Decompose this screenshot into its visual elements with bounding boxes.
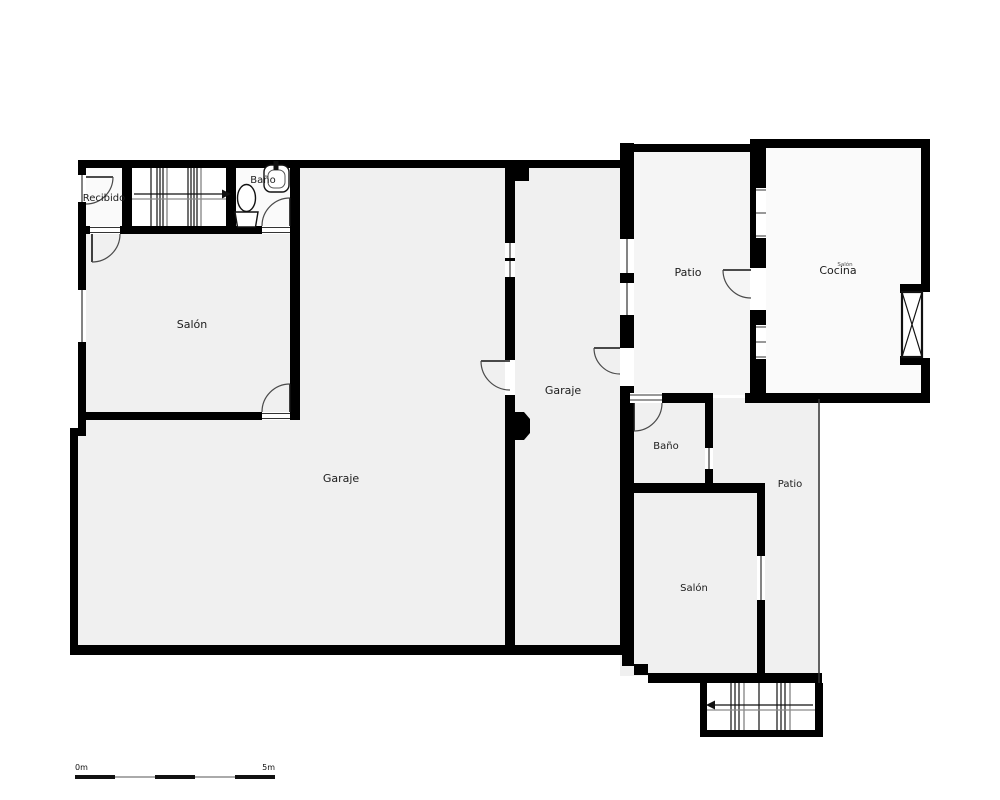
room-label-garaje-second: Garaje	[545, 384, 582, 397]
scale-bar: 0m 5m	[75, 763, 275, 779]
wall-cocina-top	[750, 139, 930, 148]
room-label-salon-bottom: Salón	[680, 582, 708, 594]
toilet-icon	[238, 185, 256, 212]
x-window	[900, 284, 930, 365]
wall-salon-right	[290, 160, 300, 420]
wall-step-1	[622, 655, 634, 666]
wall-step-2	[634, 664, 648, 675]
wall-stairs2-right	[815, 683, 823, 737]
window-garage-divider	[505, 240, 515, 280]
wall-left-lower	[70, 428, 78, 655]
opening-cocina-door	[750, 268, 766, 310]
wall-top-nw	[78, 160, 634, 168]
room-label-bano-right: Baño	[653, 441, 678, 452]
room-label-recibido: Recibido	[83, 193, 126, 204]
window-east-divider-2	[620, 280, 634, 318]
wall-cocina-right	[921, 139, 930, 403]
floor-plan-page: Recibido Baño Salón Garaje Garaje Patio …	[0, 0, 1000, 800]
window-salon2	[757, 553, 765, 603]
floor-nw-block	[78, 160, 634, 655]
window-cocina-lower	[756, 325, 766, 359]
threshold-salon-bottom	[262, 412, 290, 420]
threshold-bano-top	[262, 226, 290, 234]
wall-stairs-bano	[226, 160, 236, 234]
room-label-garaje-main: Garaje	[323, 472, 360, 485]
opening-garage2-door	[620, 348, 634, 386]
room-label-bano-top: Baño	[250, 175, 275, 186]
scale-seg-2	[115, 776, 155, 778]
toilet-tank	[235, 212, 258, 227]
room-label-salon-top: Salón	[177, 318, 208, 331]
wall-bottom-salon2	[648, 673, 822, 683]
scale-seg-4	[195, 776, 235, 778]
threshold-bano2-top	[630, 393, 662, 403]
wall-stairs2-left	[700, 683, 707, 737]
wall-bano2-bottom	[620, 483, 765, 493]
wall-bano2-right	[705, 393, 713, 490]
scale-seg-5	[235, 775, 275, 779]
floor-stairs-top	[132, 168, 228, 228]
room-label-cocina-tiny-overlay: Salón	[837, 261, 853, 268]
wall-patio-top	[622, 144, 754, 152]
scale-end-label: 5m	[262, 763, 275, 772]
sink-tap	[274, 161, 279, 170]
room-label-patio-top: Patio	[675, 266, 702, 279]
scale-start-label: 0m	[75, 763, 88, 772]
wall-divider-pillar	[505, 412, 530, 440]
window-east-divider-1	[620, 236, 634, 276]
window-bano2	[705, 445, 713, 472]
window-salon-left	[78, 287, 86, 345]
wall-stairs2-bottom	[700, 730, 823, 737]
floor-plan-svg: Recibido Baño Salón Garaje Garaje Patio …	[0, 0, 1000, 800]
threshold-recibido-salon	[90, 226, 120, 234]
wall-bottom-garage	[70, 645, 632, 655]
scale-seg-1	[75, 775, 115, 779]
floor-se-block	[620, 398, 820, 676]
window-cocina-upper	[756, 188, 766, 238]
scale-seg-3	[155, 775, 195, 779]
wall-cocina-bottom	[745, 393, 930, 403]
room-label-patio-right: Patio	[778, 479, 803, 490]
wall-divider-corner	[505, 168, 529, 181]
floor-stairs-bottom	[707, 683, 815, 730]
room-fills	[78, 148, 923, 730]
